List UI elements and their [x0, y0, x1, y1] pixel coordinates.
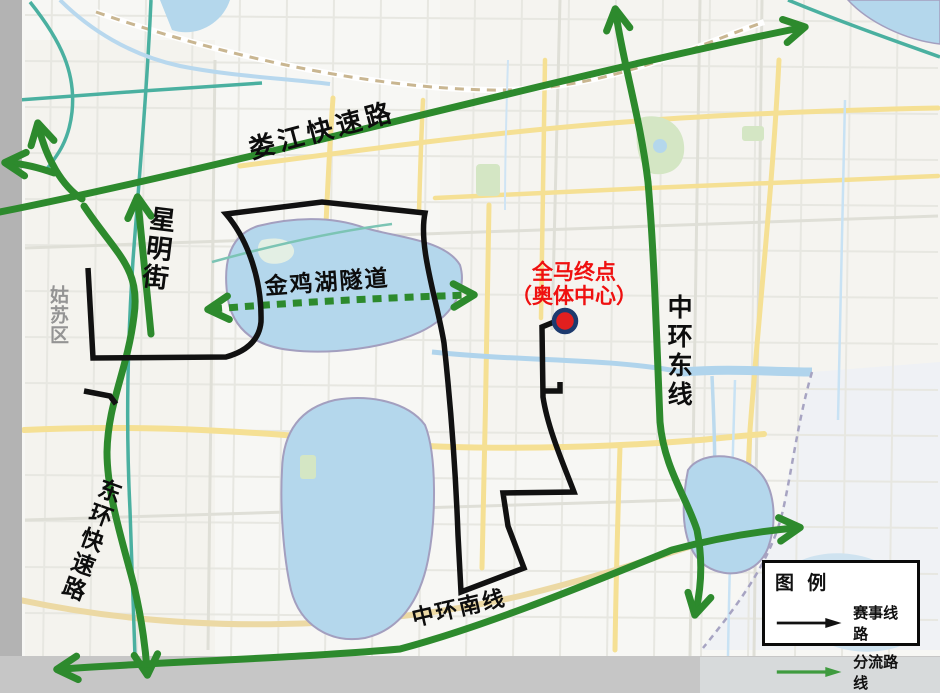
legend-race-route-label: 赛事线路 [853, 602, 907, 644]
race-route-arrow-icon [775, 616, 845, 630]
road-label-middle-ring-east: 中环东线 [665, 294, 691, 410]
legend-item-race-route: 赛事线路 [775, 602, 907, 644]
finish-marker [554, 310, 576, 332]
diversion-route-arrow-icon [775, 665, 845, 679]
legend: 图 例 赛事线路 分流路线 [762, 560, 920, 646]
finish-label-line2: （奥体中心） [511, 285, 637, 309]
legend-title: 图 例 [775, 568, 907, 595]
dushu-lake [281, 398, 434, 639]
legend-diversion-route-label: 分流路线 [853, 651, 907, 693]
legend-item-diversion-route: 分流路线 [775, 651, 907, 693]
finish-point-label: 全马终点 （奥体中心） [511, 261, 637, 309]
district-label-gusu: 姑苏区 [47, 285, 67, 345]
left-gray-margin [0, 0, 22, 693]
park-pond [653, 139, 667, 153]
finish-label-line1: 全马终点 [511, 261, 637, 285]
west-district-tint [25, 40, 215, 656]
marathon-route-map: 娄江快速路 星明街 金鸡湖隧道 中环东线 东环快速路 中环南线 姑苏区 全马终点… [0, 0, 940, 693]
